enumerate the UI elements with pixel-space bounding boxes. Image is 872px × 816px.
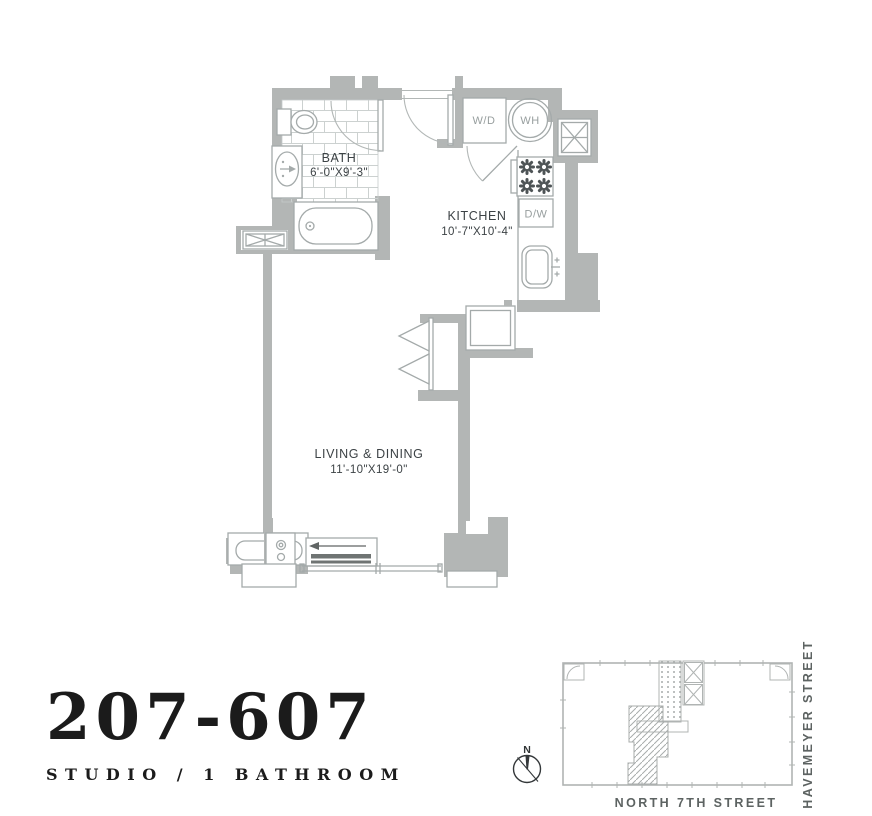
refrigerator <box>466 300 515 350</box>
stove <box>511 157 553 196</box>
kitchen-label: KITCHEN <box>447 209 506 223</box>
water-heater-label: WH <box>520 115 539 127</box>
bath-label: BATH <box>322 151 357 165</box>
unit-floor-plan: W/D WH <box>226 76 600 587</box>
living-dims: 11'-10"X19'-0" <box>330 464 407 476</box>
title-block: 207-607 STUDIO / 1 BATHROOM <box>46 686 406 784</box>
bath-sink <box>272 146 302 198</box>
living-label: LIVING & DINING <box>314 447 423 461</box>
kitchen-dims: 10'-7"X10'-4" <box>441 226 512 238</box>
window-left <box>242 564 296 587</box>
kitchen: D/W <box>466 150 560 350</box>
closet-door <box>467 146 517 181</box>
window-right <box>447 571 497 587</box>
toilet <box>277 109 317 135</box>
north-compass: N <box>514 744 541 783</box>
bifold-closet <box>399 318 433 390</box>
entry-door <box>402 91 453 146</box>
bathtub <box>294 202 378 250</box>
street-label-bottom: NORTH 7TH STREET <box>615 796 778 810</box>
compass-north-label: N <box>523 744 531 756</box>
unit-type: STUDIO / 1 BATHROOM <box>46 765 406 784</box>
street-label-right: HAVEMEYER STREET <box>801 639 815 808</box>
kitchen-sink <box>522 246 560 288</box>
dishwasher-label: D/W <box>525 209 548 221</box>
shaft <box>558 119 591 156</box>
site-plan: N NORTH 7TH STREET HAVEMEYER STREET <box>514 639 816 810</box>
unit-number: 207-607 <box>46 686 406 750</box>
wall-chase-vent <box>241 230 288 250</box>
bath-dims: 6'-0"X9'-3" <box>310 167 368 179</box>
dishwasher: D/W <box>519 199 553 227</box>
sliding-door <box>306 538 377 566</box>
washer-dryer-label: W/D <box>473 115 496 127</box>
ac-unit <box>228 518 308 565</box>
floorplan-page: W/D WH <box>0 0 872 816</box>
